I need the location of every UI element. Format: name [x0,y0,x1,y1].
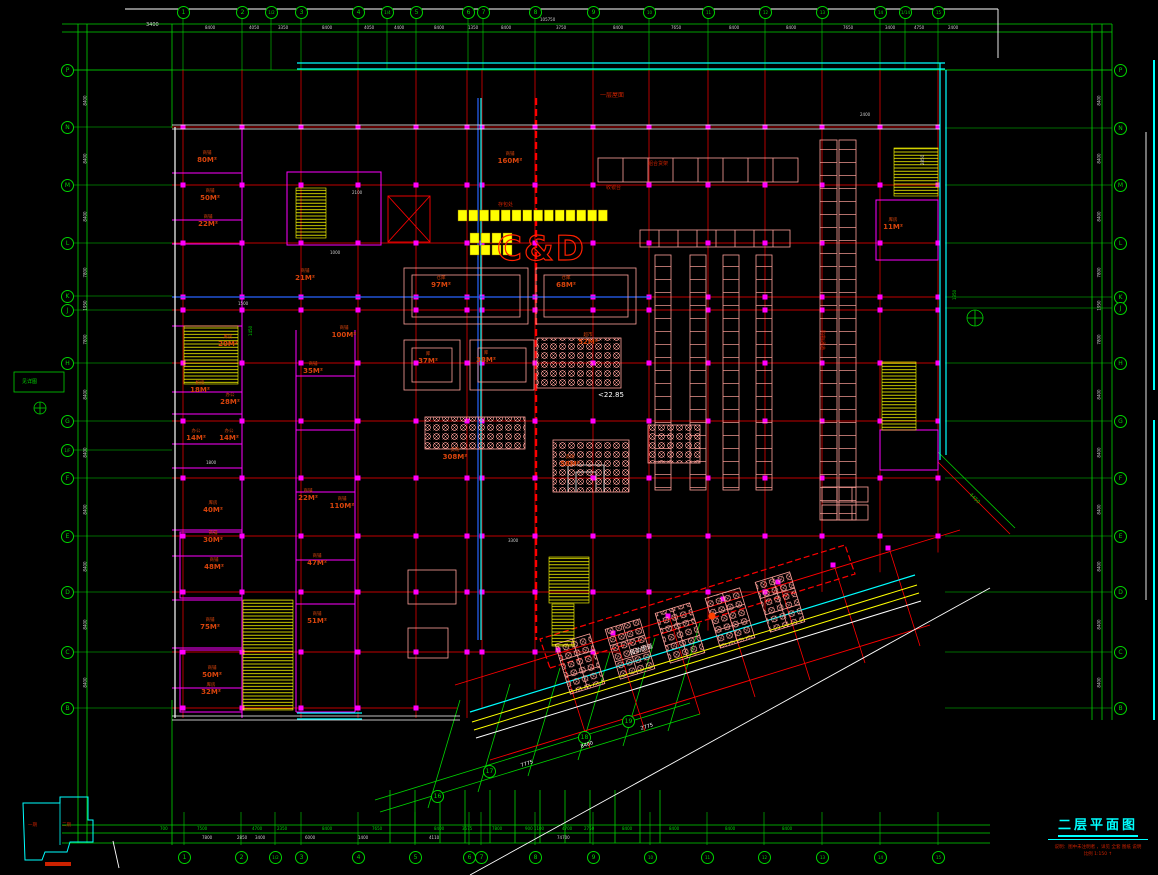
key-plan-label-right: 二期 [62,822,71,828]
drawing-note-2: 比例 1:150 ↑ [1040,851,1156,857]
green-dimension-frame [14,24,1112,845]
drawing-title: 二层平面图 [1058,814,1138,837]
cnd-logo: C&D [497,229,586,269]
floor-plan-drawing: C&D [0,0,1158,875]
retail-fixtures [404,140,868,694]
key-plan-label-left: 一期 [28,822,37,828]
axis-extension-lines [73,18,1112,845]
key-plan-scale-bar [45,862,71,866]
cad-floor-plan-sheet: C&D 121/2341/45678910111213141/1415121/2… [0,0,1158,875]
drawing-note-1: 说明：图中未注明者 ，详见 全套 图纸 说明 [1040,844,1156,850]
title-block: 二层平面图 说明：图中未注明者 ，详见 全套 图纸 说明 比例 1:150 ↑ [1040,814,1156,857]
hydrant-symbol [709,613,716,620]
title-underline [1048,839,1148,840]
sheet-border-and-walls [113,9,1146,875]
